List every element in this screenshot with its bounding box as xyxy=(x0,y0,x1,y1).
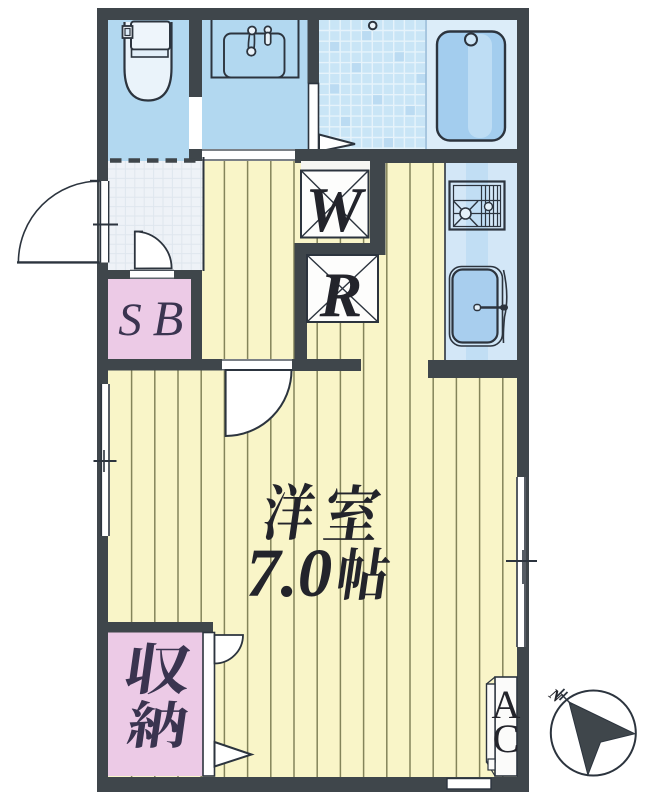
svg-text:C: C xyxy=(493,716,520,761)
svg-text:S: S xyxy=(118,294,142,346)
svg-text:B: B xyxy=(153,290,184,346)
svg-text:W: W xyxy=(306,174,367,245)
svg-text:7.0: 7.0 xyxy=(246,535,332,611)
svg-text:R: R xyxy=(319,259,363,330)
